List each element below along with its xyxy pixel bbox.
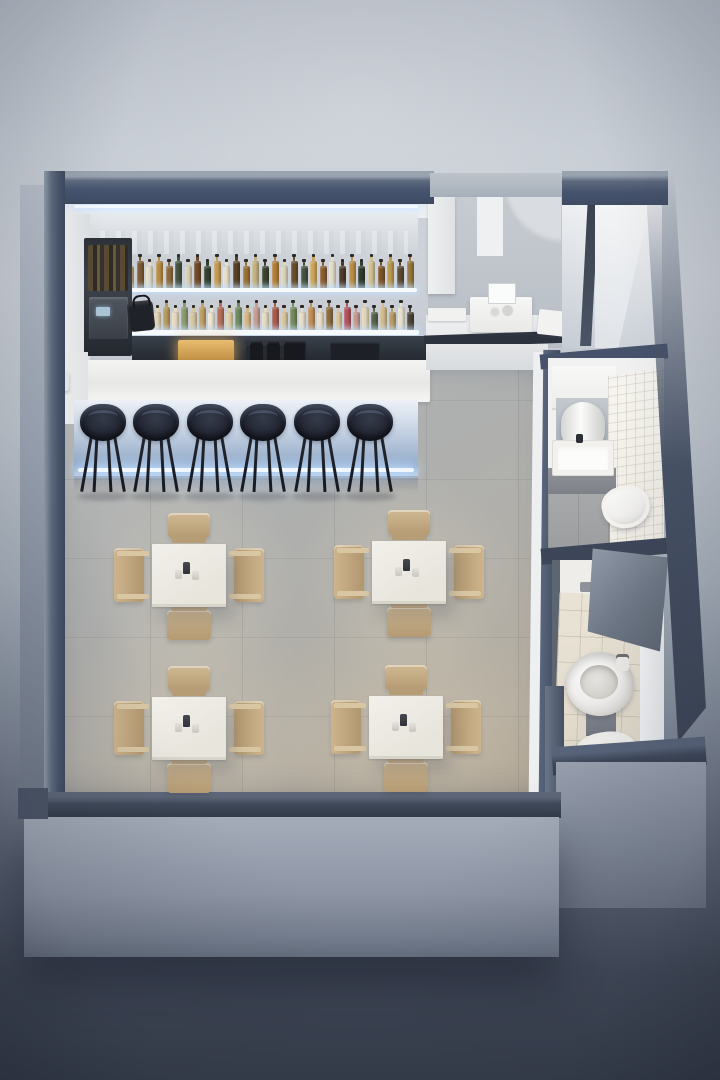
register-screen [488,283,516,304]
tabletop [372,541,446,604]
beer-tap [263,344,267,360]
stool-leg [347,436,360,492]
stool-leg [294,436,307,492]
stool-seat [347,404,393,441]
stool-shadow [344,492,396,501]
register-dials [486,305,516,319]
bar-counter-top [82,360,430,402]
chair-west [114,548,144,602]
stool-leg [166,436,179,492]
stool-shadow [237,492,289,501]
chair-east [451,700,481,754]
bottom-wall-cap [20,792,561,818]
chair-north [385,665,427,690]
pepper-grinder [400,714,407,726]
stool-leg [321,436,327,492]
coffee-machine-screen [96,307,110,316]
salt-shaker [192,571,199,580]
bottom-corner-cap [18,788,48,819]
bar-stool [187,404,233,504]
left-exterior-wall [20,185,46,818]
station-bottle-rack [88,245,128,291]
tabletop [152,544,226,607]
service-lower-cabinet [426,344,548,370]
shelf-led-lower [119,330,419,335]
salt-shaker [395,567,402,576]
chair-north [388,510,430,535]
chair-south [167,610,211,640]
stool-shadow [130,492,182,501]
chair-north [168,666,210,691]
chair-north [168,513,210,538]
top-wall-cap-middle [430,173,566,197]
stool-leg [187,436,200,492]
chair-east [454,545,484,599]
salt-shaker [409,723,416,732]
stool-leg [273,436,286,492]
stool-leg [240,436,253,492]
stool-leg [107,436,113,492]
stool-leg [113,436,126,492]
salt-shaker [412,568,419,577]
chair-east [234,548,264,602]
liquor-shelf-lower [127,294,414,334]
wing-exterior-wall [556,762,706,908]
chair-west [114,701,144,755]
liquor-shelf-upper [127,250,414,292]
top-wall-cap-left [44,171,434,204]
coffee-machine [89,297,128,339]
restroom-1 [548,358,664,552]
stool-seat [240,404,286,441]
stool-leg [214,436,220,492]
chair-west [331,700,361,754]
stool-seat [80,404,126,441]
stool-leg [200,436,206,492]
bar-stool [133,404,179,504]
bottom-exterior-wall [24,817,559,957]
stool-leg [80,436,93,492]
stool-leg [307,436,313,492]
stool-seat [187,404,233,441]
left-wall-cap [44,171,65,819]
stool-leg [133,436,146,492]
chair-south [387,607,431,637]
salt-shaker [392,722,399,731]
salt-shaker [192,724,199,733]
stool-leg [253,436,259,492]
shelf-led-upper [123,288,417,292]
chair-west [334,545,364,599]
scene-canvas [0,0,720,1080]
beer-tap [280,344,284,360]
stool-leg [327,436,340,492]
stool-shadow [291,492,343,501]
stool-shadow [77,492,129,501]
tabletop [152,697,226,760]
stool-leg [267,436,273,492]
stool-leg [93,436,99,492]
stool-leg [220,436,233,492]
salt-shaker [175,723,182,732]
stool-leg [160,436,166,492]
stool-seat [133,404,179,441]
bar-led-strip [74,205,418,208]
tabletop [369,696,443,759]
stool-shadow [184,492,236,501]
sink-faucet [576,434,583,443]
pepper-grinder [183,562,190,574]
bar-stool [347,404,393,504]
barista-bag [127,300,156,333]
salt-shaker [175,570,182,579]
stool-leg [360,436,366,492]
bar-stool [240,404,286,504]
bar-stool [80,404,126,504]
stool-leg [146,436,152,492]
restroom1-sink [552,440,614,476]
pepper-grinder [183,715,190,727]
beer-tap [246,344,250,360]
chair-south [167,763,211,793]
stool-seat [294,404,340,441]
bar-stool [294,404,340,504]
stool-leg [374,436,380,492]
stool-leg [380,436,393,492]
pepper-grinder [403,559,410,571]
service-upper-cabinet [428,196,455,294]
chair-east [234,701,264,755]
chair-south [384,762,428,792]
soap-dispenser [616,654,629,671]
service-tray [428,308,466,321]
